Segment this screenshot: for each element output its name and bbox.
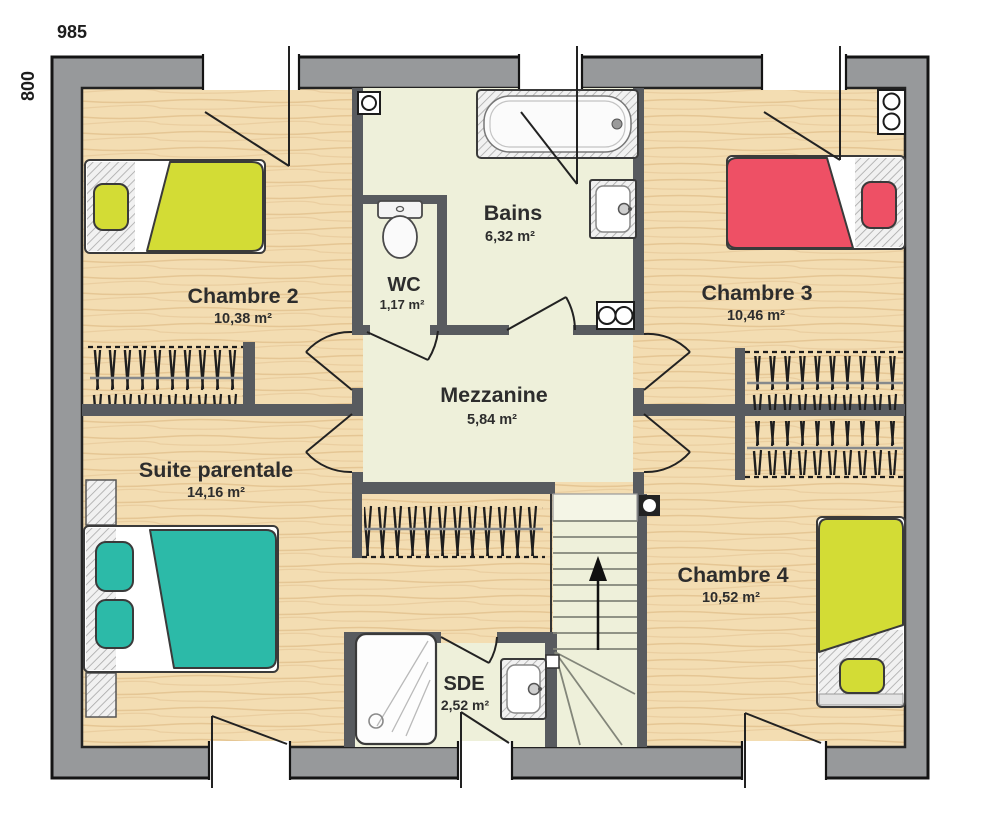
room-area-chambre2: 10,38 m² (214, 311, 272, 327)
shower (356, 634, 436, 744)
window-bottom-sde (458, 741, 512, 780)
room-area-suite: 14,16 m² (187, 485, 245, 501)
pillow (840, 659, 884, 693)
room-label-suite: Suite parentale (139, 458, 293, 482)
dimension-width: 985 (57, 22, 87, 42)
bed-chambre4 (817, 517, 905, 707)
spot-fixture-stairs (639, 495, 660, 516)
room-area-sde: 2,52 m² (441, 697, 490, 713)
double-fixture-bains (597, 302, 634, 329)
room-label-wc: WC (387, 274, 420, 296)
closet-chambre4 (745, 421, 905, 477)
nightstand (86, 673, 116, 717)
double-fixture-chambre3 (878, 90, 905, 134)
room-area-bains: 6,32 m² (485, 229, 535, 245)
room-label-chambre3: Chambre 3 (701, 281, 812, 305)
room-area-chambre4: 10,52 m² (702, 590, 760, 606)
stair-post (546, 655, 559, 668)
room-label-chambre4: Chambre 4 (677, 563, 788, 587)
pillow (96, 600, 133, 648)
stair-landing (553, 494, 637, 521)
dimension-height: 800 (18, 71, 38, 101)
sde-sink (501, 659, 546, 719)
nightstand (86, 480, 116, 525)
room-area-wc: 1,17 m² (380, 297, 425, 312)
bains-sink (590, 180, 636, 238)
room-area-mezzanine: 5,84 m² (467, 412, 517, 428)
closet-chambre3 (745, 352, 905, 410)
closet-chambre2 (88, 347, 243, 404)
tub-faucet (612, 119, 622, 129)
bed-chambre3 (727, 156, 905, 249)
window-top-chambre3 (762, 54, 846, 90)
room-label-mezzanine: Mezzanine (440, 383, 548, 407)
pillow (94, 184, 128, 230)
floor-plan-canvas: 985 800 Chambre 2 10,38 m² WC 1,17 m² Ba… (0, 0, 1000, 831)
spot-fixture-bains (358, 92, 380, 114)
room-label-sde: SDE (443, 673, 484, 695)
bed-chambre2 (85, 160, 265, 253)
room-label-chambre2: Chambre 2 (187, 284, 298, 308)
pillow (96, 542, 133, 591)
closet-suite (362, 502, 545, 557)
window-top-chambre2 (203, 54, 299, 90)
window-top-bains (519, 54, 582, 90)
floor-plan: 985 800 Chambre 2 10,38 m² WC 1,17 m² Ba… (0, 0, 1000, 831)
room-label-bains: Bains (484, 201, 543, 225)
window-bottom-suite (209, 741, 290, 780)
window-bottom-chambre4 (742, 741, 826, 780)
bathtub (477, 90, 638, 158)
mezzanine-floor (363, 332, 633, 482)
pillow (862, 182, 896, 228)
room-area-chambre3: 10,46 m² (727, 308, 785, 324)
